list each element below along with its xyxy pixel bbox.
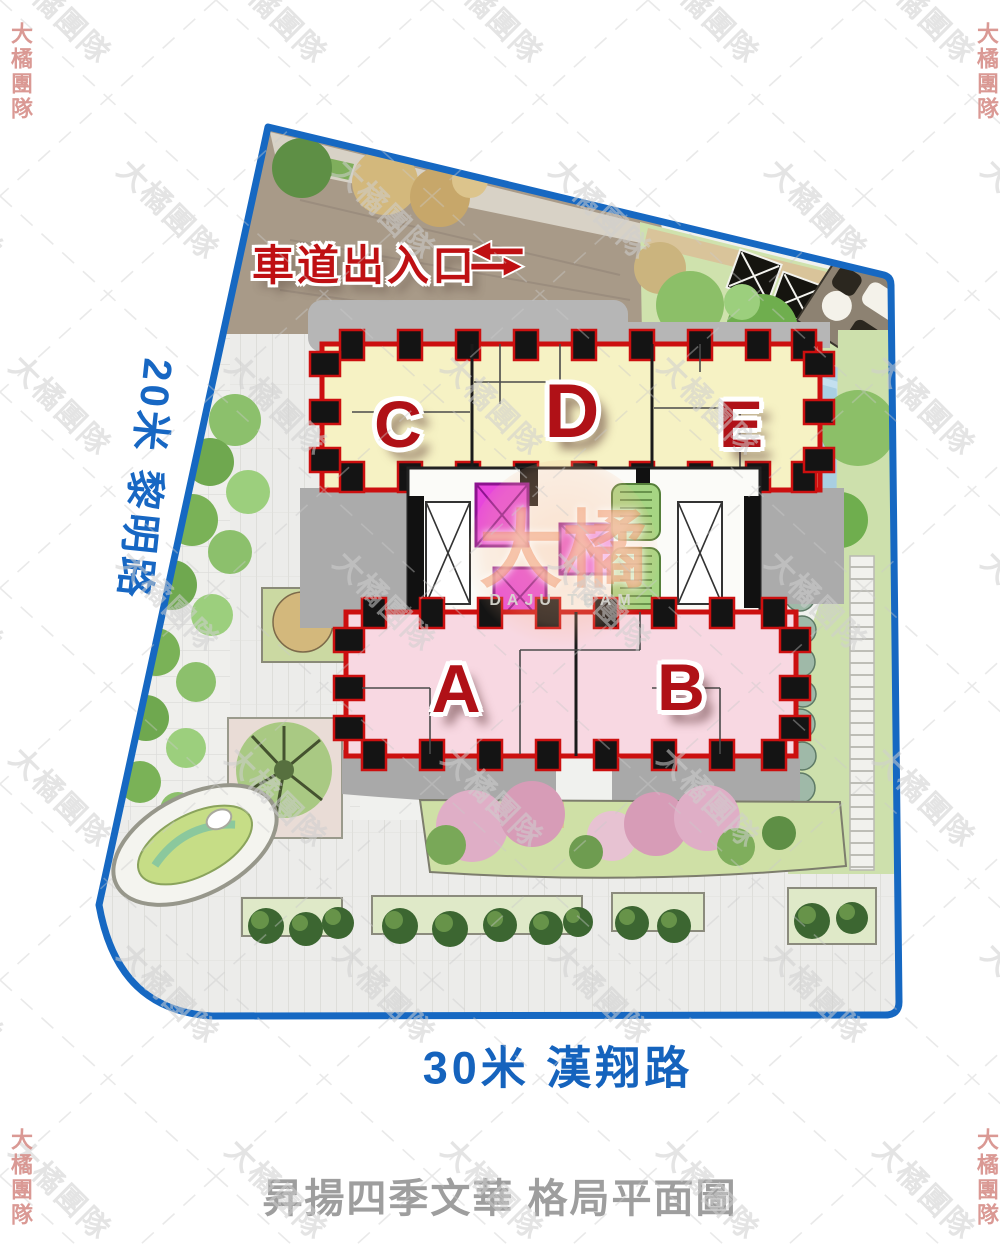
unit-label-e: E <box>719 391 763 457</box>
unit-label-c: C <box>374 391 422 457</box>
east-pad <box>756 488 844 604</box>
driveway-entrance-label: 車道出入口 <box>252 232 477 293</box>
plan-title: 昇揚四季文華 格局平面圖 <box>262 1166 737 1224</box>
road-label-hanxiang: 30米 漢翔路 <box>423 1032 694 1097</box>
center-logo-watermark: 大橘 DAJU TEAM <box>468 460 658 650</box>
unit-label-b: B <box>657 654 705 720</box>
boardwalk <box>850 556 874 870</box>
logo-watermark-text: 大橘 <box>479 483 647 604</box>
two-way-arrow-icon <box>468 240 526 278</box>
west-pad <box>300 488 410 628</box>
site-plan-page: 車道出入口 20米 黎明路 30米 漢翔路 昇揚四季文華 格局平面圖 C D E… <box>0 0 1000 1250</box>
logo-watermark-subtext: DAJU TEAM <box>489 592 636 610</box>
unit-label-d: D <box>545 374 600 450</box>
unit-label-a: A <box>431 655 480 723</box>
